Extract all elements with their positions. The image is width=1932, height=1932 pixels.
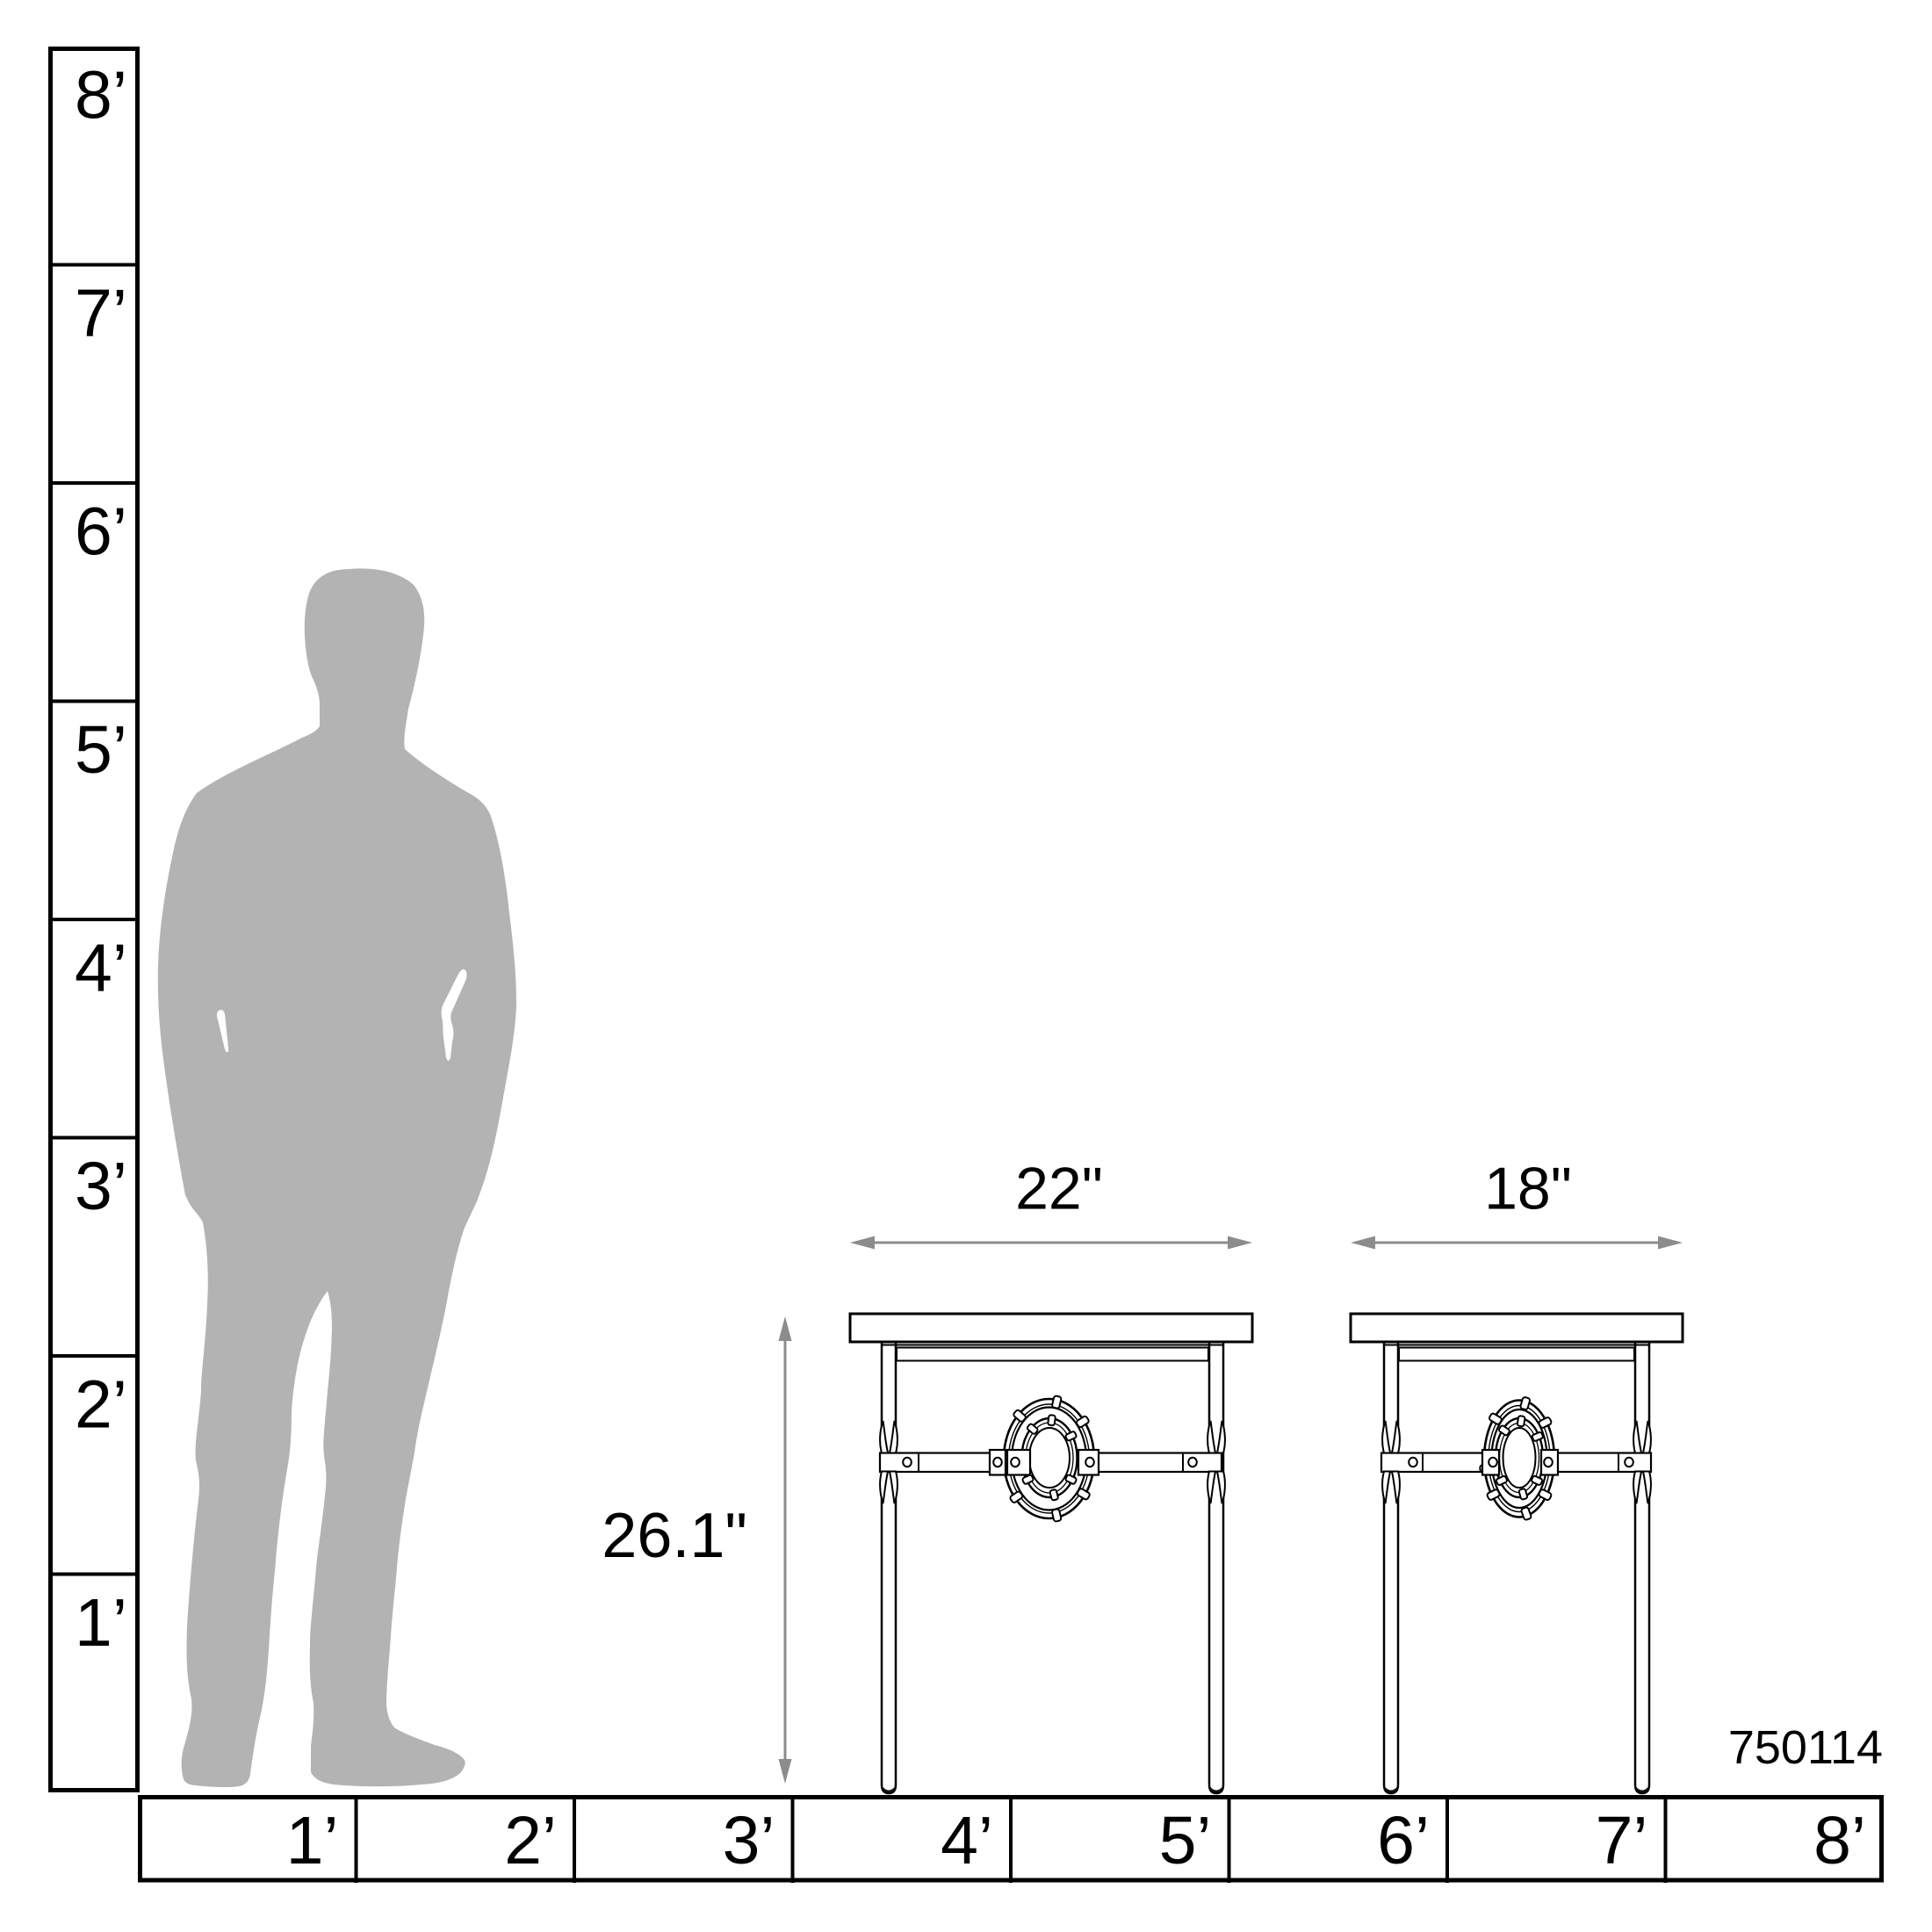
svg-text:4’: 4’ [75, 931, 127, 1006]
svg-text:6’: 6’ [75, 494, 127, 570]
svg-text:4’: 4’ [941, 1803, 993, 1878]
svg-text:5’: 5’ [75, 712, 127, 788]
svg-text:3’: 3’ [723, 1803, 775, 1878]
svg-text:6’: 6’ [1377, 1803, 1430, 1878]
svg-text:18": 18" [1484, 1156, 1572, 1222]
svg-text:2’: 2’ [504, 1803, 557, 1878]
svg-text:1’: 1’ [286, 1803, 339, 1878]
svg-text:3’: 3’ [75, 1149, 127, 1224]
svg-text:2’: 2’ [75, 1367, 127, 1443]
svg-text:22": 22" [1015, 1156, 1103, 1222]
svg-text:5’: 5’ [1159, 1803, 1212, 1878]
svg-text:7’: 7’ [75, 276, 127, 351]
svg-text:1’: 1’ [75, 1585, 127, 1661]
svg-text:750114: 750114 [1728, 1721, 1883, 1774]
svg-text:26.1": 26.1" [602, 1501, 747, 1571]
svg-text:8’: 8’ [1813, 1803, 1866, 1878]
svg-text:7’: 7’ [1596, 1803, 1648, 1878]
svg-text:8’: 8’ [75, 58, 127, 133]
